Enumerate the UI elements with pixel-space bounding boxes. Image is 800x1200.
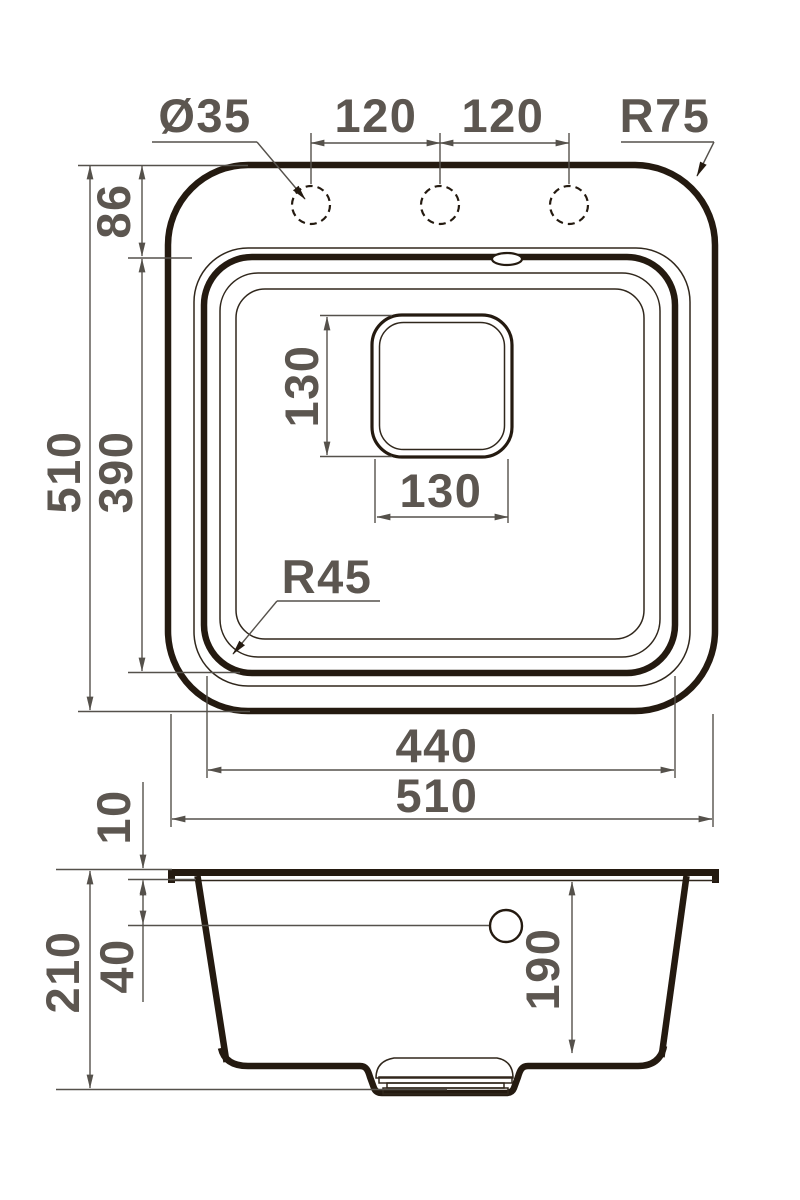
dimension-label: 210 xyxy=(36,931,89,1014)
dimension-label: 130 xyxy=(275,345,328,428)
dimension-bowl-depth: 390 xyxy=(89,259,240,673)
drain-assembly xyxy=(376,1058,513,1094)
dimension-label: R45 xyxy=(282,550,373,603)
dimension-hole-spacing-2: 120 xyxy=(440,89,569,143)
faucet-hole-center xyxy=(421,186,459,224)
dimension-overflow-offset: 40 xyxy=(90,882,489,1002)
dimension-rim-height: 10 xyxy=(87,782,196,896)
dimension-drain-horizontal: 130 xyxy=(375,459,508,523)
sink-outer-outline xyxy=(168,165,715,711)
overflow-slot-top-view xyxy=(492,253,522,265)
dimension-hole-diameter: Ø35 xyxy=(152,89,305,199)
bowl-right-wall xyxy=(662,876,687,1057)
dimension-overall-depth: 510 xyxy=(37,166,250,712)
dimension-label: 40 xyxy=(90,938,143,993)
faucet-hole-right xyxy=(550,186,588,224)
dimension-label: 510 xyxy=(37,431,90,514)
bowl-left-wall xyxy=(198,876,227,1062)
bowl-bottom-profile xyxy=(221,1046,664,1093)
leader-arrow xyxy=(233,601,277,654)
dimension-bowl-width: 440 xyxy=(207,676,675,778)
dimension-label: 510 xyxy=(396,769,479,822)
dimension-label: R75 xyxy=(620,89,711,142)
faucet-hole-left xyxy=(292,186,330,224)
technical-drawing-canvas: Ø35 120 120 R75 86 510 390 130 xyxy=(0,0,800,1200)
dimension-label: 120 xyxy=(462,89,545,142)
dimension-label: 130 xyxy=(400,464,483,517)
drain-cap-dome xyxy=(376,1058,513,1078)
drain-cutout-outer xyxy=(372,315,512,457)
drain-cutout-inner xyxy=(380,323,505,450)
drawing-page: Ø35 120 120 R75 86 510 390 130 xyxy=(0,0,800,1200)
dimension-label: 10 xyxy=(87,789,140,844)
dimension-label: 440 xyxy=(396,719,479,772)
dimension-label: Ø35 xyxy=(158,89,251,142)
dimension-bowl-inner-depth: 190 xyxy=(516,882,572,1053)
leader-arrow xyxy=(697,142,714,176)
side-view xyxy=(168,869,719,1094)
dimension-label: 190 xyxy=(516,928,569,1011)
dimension-label: 120 xyxy=(335,89,418,142)
leader-arrow xyxy=(257,142,305,199)
dimension-label: 86 xyxy=(87,183,140,238)
dimension-label: 390 xyxy=(89,431,142,514)
dimension-hole-spacing-1: 120 xyxy=(311,89,440,143)
top-view xyxy=(168,165,715,711)
